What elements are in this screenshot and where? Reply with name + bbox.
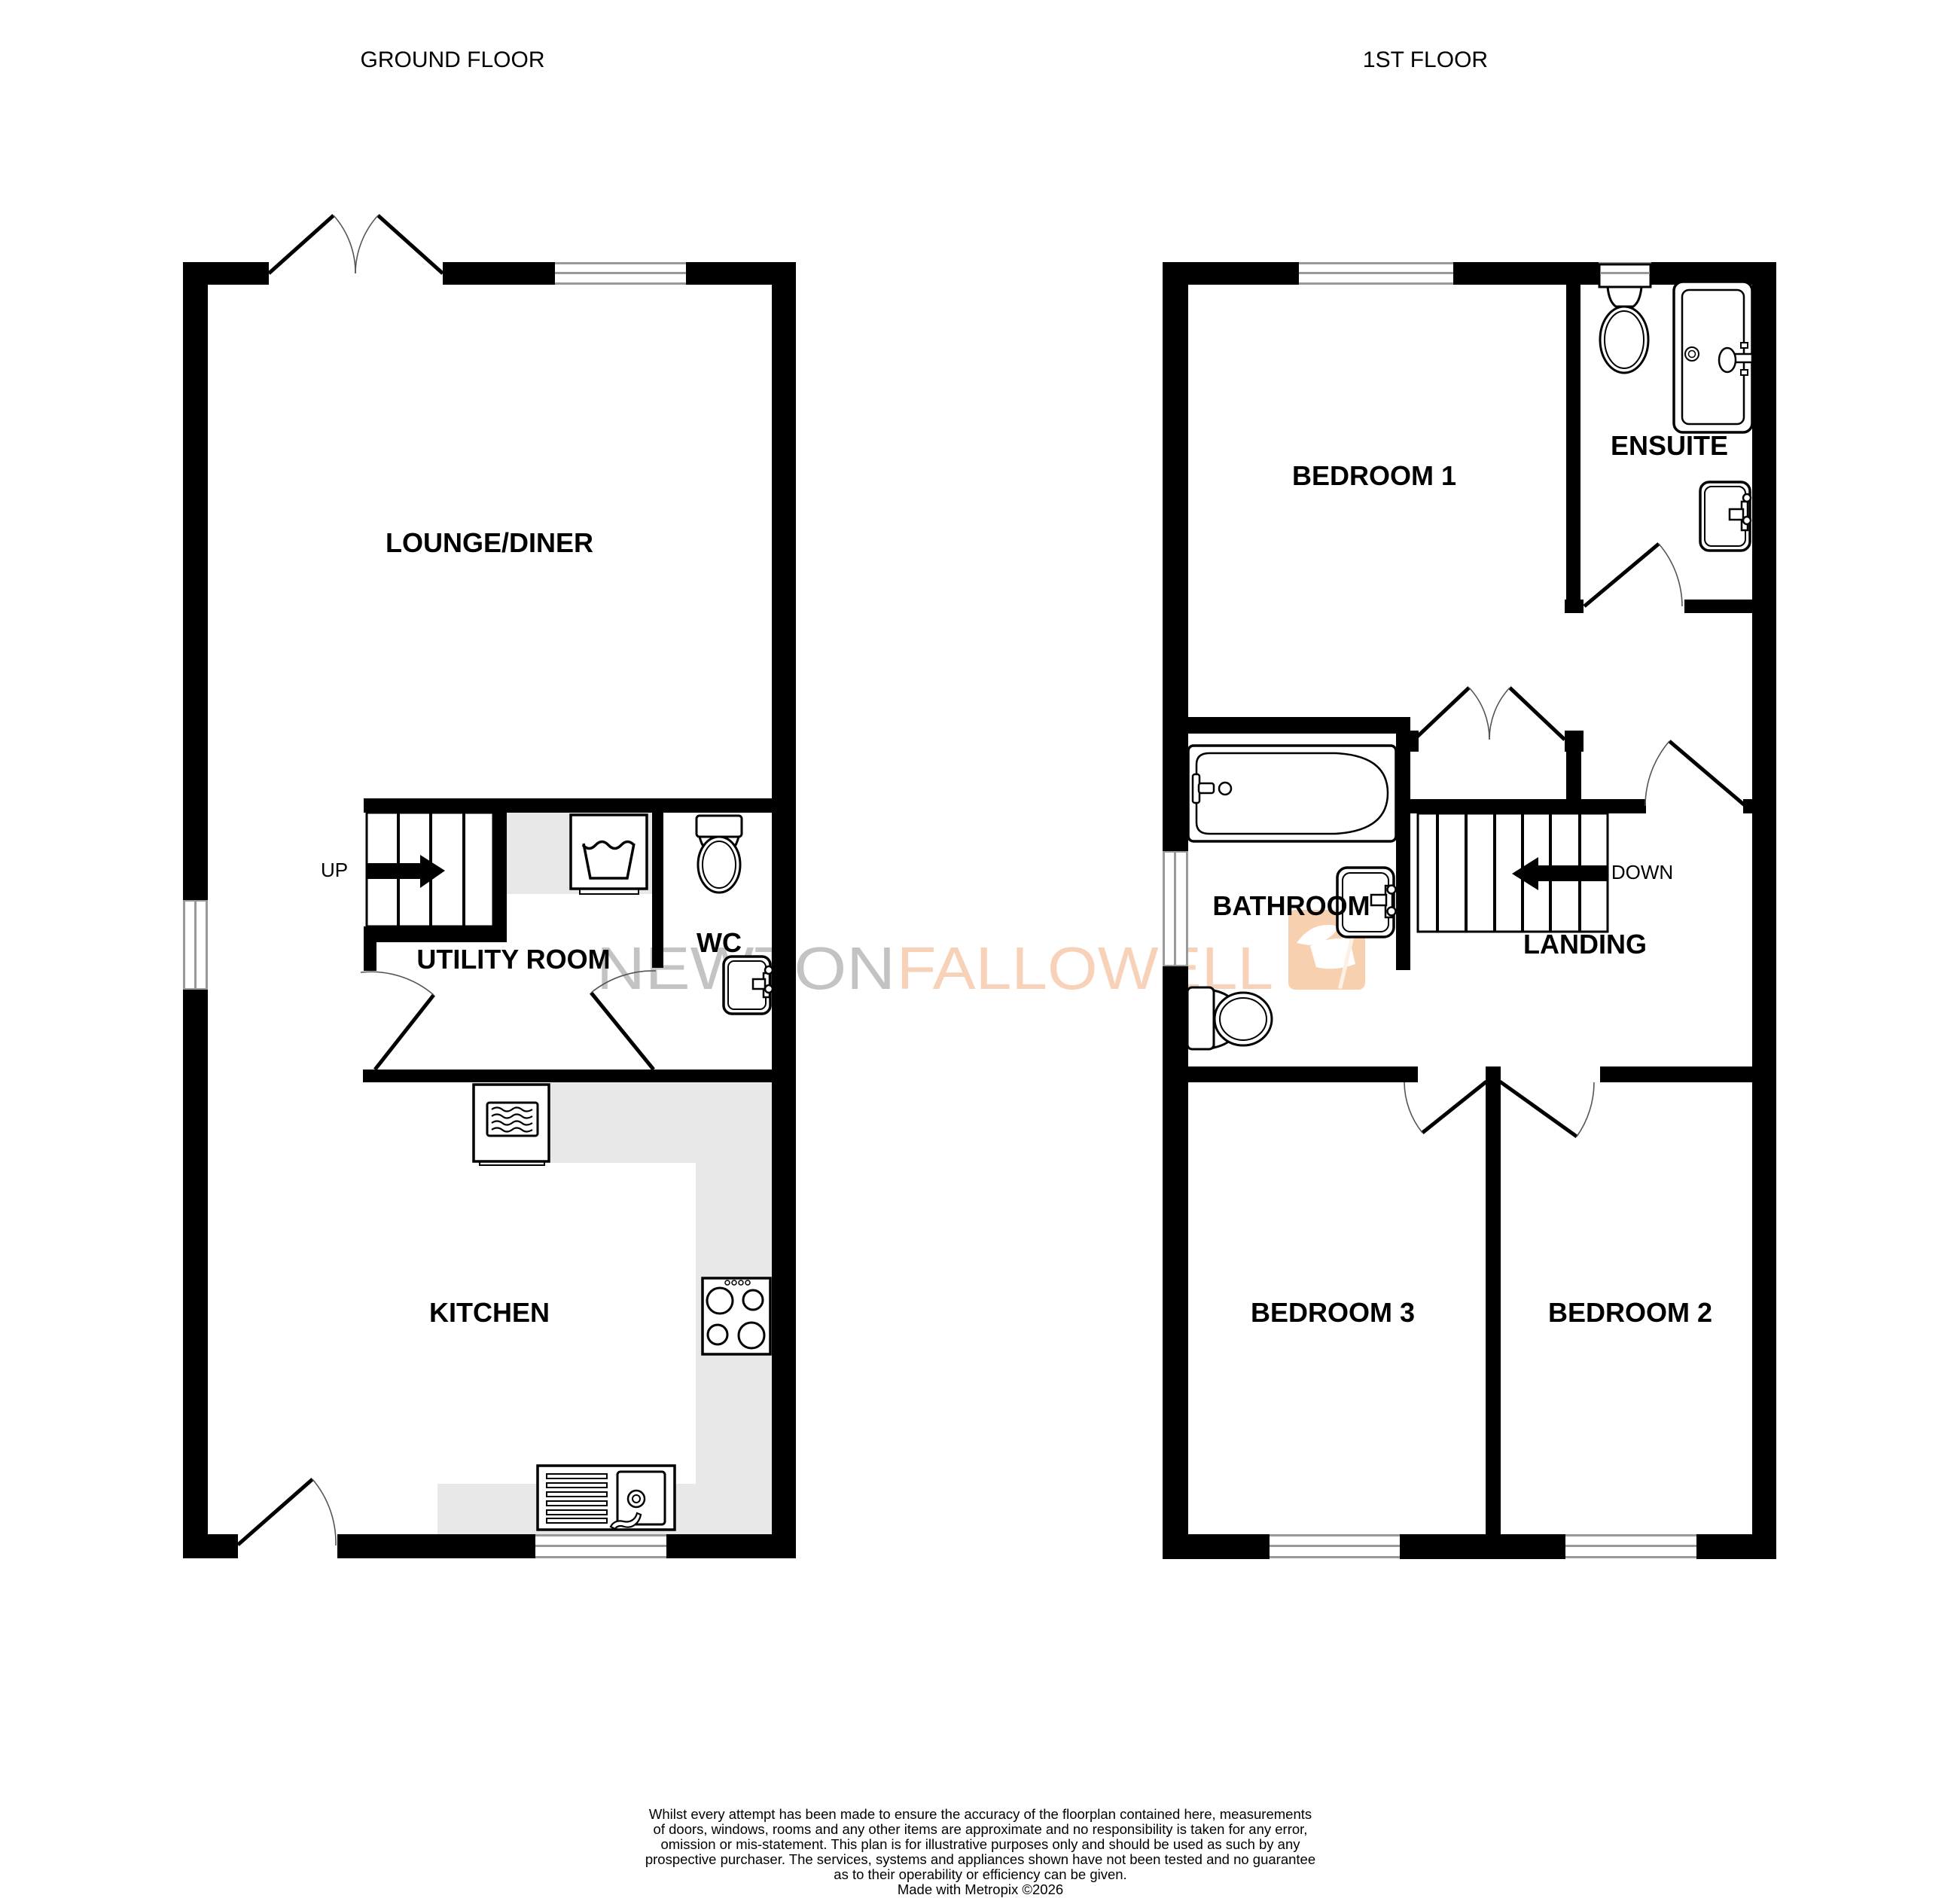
svg-text:omission or mis-statement. Thi: omission or mis-statement. This plan is … xyxy=(660,1836,1300,1852)
svg-text:BEDROOM 3: BEDROOM 3 xyxy=(1251,1297,1415,1328)
svg-text:LANDING: LANDING xyxy=(1523,929,1647,960)
svg-text:Whilst every attempt has been: Whilst every attempt has been made to en… xyxy=(649,1806,1312,1822)
svg-text:KITCHEN: KITCHEN xyxy=(429,1297,550,1328)
svg-text:WC: WC xyxy=(697,927,742,958)
svg-text:as to their operability or eff: as to their operability or efficiency ca… xyxy=(834,1866,1126,1882)
svg-text:BATHROOM: BATHROOM xyxy=(1212,890,1370,921)
svg-text:UP: UP xyxy=(321,859,348,881)
svg-text:ENSUITE: ENSUITE xyxy=(1611,430,1728,461)
svg-text:prospective purchaser. The ser: prospective purchaser. The services, sys… xyxy=(645,1851,1315,1867)
svg-text:DOWN: DOWN xyxy=(1611,861,1673,883)
svg-text:BEDROOM 1: BEDROOM 1 xyxy=(1292,460,1456,491)
svg-text:UTILITY ROOM: UTILITY ROOM xyxy=(416,944,610,975)
svg-text:Made with Metropix ©2026: Made with Metropix ©2026 xyxy=(898,1881,1063,1897)
svg-text:BEDROOM 2: BEDROOM 2 xyxy=(1548,1297,1712,1328)
svg-text:GROUND FLOOR: GROUND FLOOR xyxy=(360,47,544,72)
svg-text:1ST FLOOR: 1ST FLOOR xyxy=(1363,47,1488,72)
svg-text:LOUNGE/DINER: LOUNGE/DINER xyxy=(386,527,593,558)
svg-text:of doors, windows, rooms and a: of doors, windows, rooms and any other i… xyxy=(654,1821,1308,1837)
